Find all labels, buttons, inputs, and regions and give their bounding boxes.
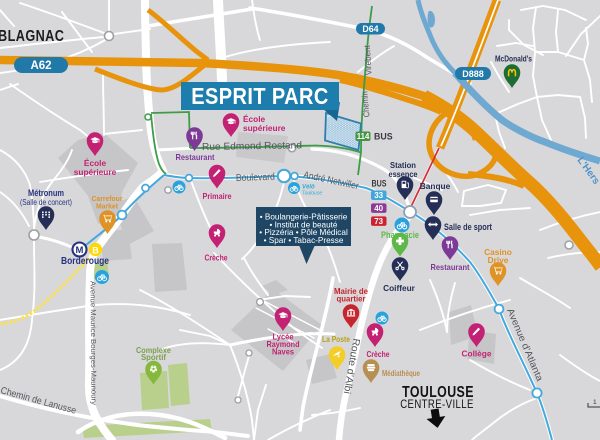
svg-text:Naves: Naves <box>272 346 294 356</box>
svg-text:Restaurant: Restaurant <box>176 152 215 162</box>
svg-text:Borderouge: Borderouge <box>61 256 109 267</box>
svg-text:Rue Edmond Rostand: Rue Edmond Rostand <box>202 140 302 153</box>
svg-text:ESPRIT PARC: ESPRIT PARC <box>191 82 328 109</box>
svg-text:Collège: Collège <box>462 349 492 359</box>
svg-text:Virebent: Virebent <box>362 44 374 75</box>
svg-text:B: B <box>92 245 99 255</box>
svg-text:Coiffeur: Coiffeur <box>383 283 416 293</box>
svg-text:Restaurant: Restaurant <box>431 262 470 272</box>
svg-text:BUS: BUS <box>374 132 393 142</box>
svg-text:Banque: Banque <box>420 181 451 191</box>
svg-text:Salle de sport: Salle de sport <box>444 222 492 232</box>
svg-text:quartier: quartier <box>337 294 367 304</box>
svg-text:supérieure: supérieure <box>243 123 286 133</box>
svg-text:D888: D888 <box>462 69 484 79</box>
svg-text:McDonald's: McDonald's <box>495 55 532 64</box>
svg-text:A62: A62 <box>30 60 51 72</box>
svg-text:Crèche: Crèche <box>205 253 228 263</box>
svg-text:D64: D64 <box>362 24 378 34</box>
svg-text:Avenue Maurice Bourges-Maunour: Avenue Maurice Bourges-Maunoury <box>89 281 99 405</box>
svg-text:114: 114 <box>357 132 370 141</box>
svg-text:Médiathèque: Médiathèque <box>382 368 420 378</box>
svg-text:Boulevard: Boulevard <box>236 172 275 184</box>
svg-text:(Salle de concert): (Salle de concert) <box>20 198 72 207</box>
svg-text:BLAGNAC: BLAGNAC <box>0 28 64 45</box>
svg-text:• Spar • Tabac-Presse: • Spar • Tabac-Presse <box>264 236 344 245</box>
svg-text:Market: Market <box>96 202 119 211</box>
svg-text:Crèche: Crèche <box>367 349 390 359</box>
svg-text:33: 33 <box>374 191 383 200</box>
svg-text:BUS: BUS <box>372 178 387 188</box>
svg-text:M: M <box>76 245 84 256</box>
svg-text:73: 73 <box>374 217 383 226</box>
svg-text:40: 40 <box>374 204 383 213</box>
svg-text:1: 1 <box>593 399 597 406</box>
svg-text:Toulouse: Toulouse <box>302 191 322 197</box>
svg-text:supérieure: supérieure <box>74 167 117 177</box>
svg-text:Sportif: Sportif <box>141 352 166 362</box>
svg-text:La Poste: La Poste <box>322 334 350 344</box>
svg-text:Primaire: Primaire <box>203 191 232 201</box>
